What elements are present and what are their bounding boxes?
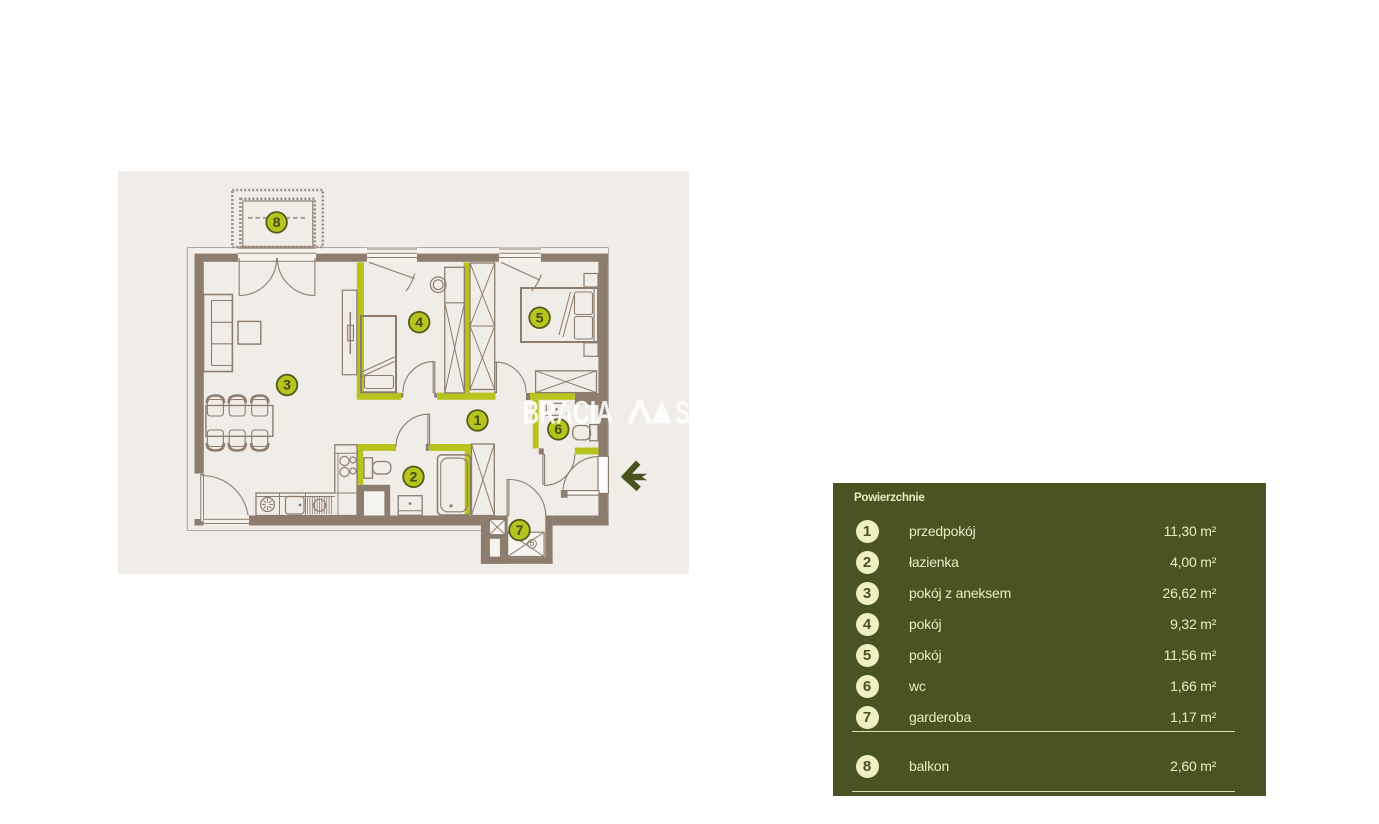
svg-text:S: S (676, 395, 690, 431)
svg-text:2: 2 (410, 469, 418, 485)
svg-text:7: 7 (516, 522, 524, 538)
svg-text:BRACIA: BRACIA (523, 395, 614, 431)
svg-text:3: 3 (283, 377, 291, 393)
svg-text:1: 1 (474, 412, 482, 428)
svg-text:8: 8 (273, 214, 281, 230)
svg-text:4: 4 (415, 314, 423, 330)
svg-text:5: 5 (536, 309, 544, 325)
